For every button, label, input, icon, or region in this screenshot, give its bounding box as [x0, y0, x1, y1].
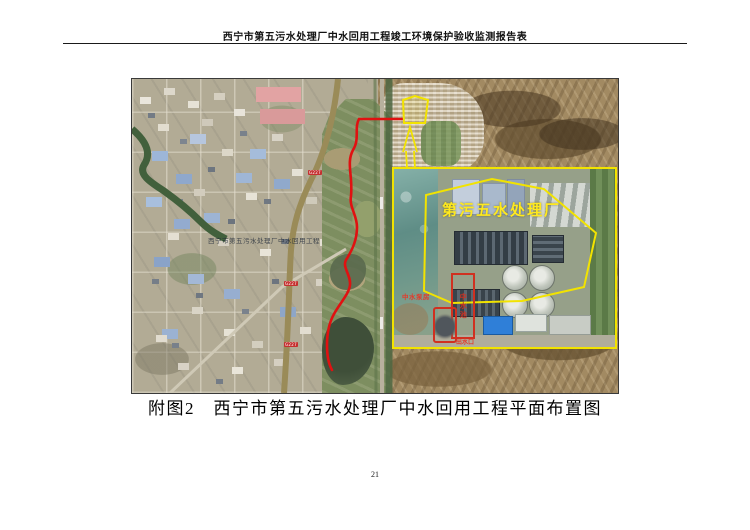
- plant-boundary-outline: [424, 179, 596, 303]
- inset-leader-arrowhead: [403, 127, 417, 152]
- satellite-map-figure: G227 G227 G227 西宁市第五污水处理厂中水回用工程 第污五水处理厂 …: [131, 78, 619, 394]
- inset-overlay-svg: [394, 169, 615, 347]
- reuse-tank-label: 中水池: [459, 293, 467, 320]
- inset-leader-left: [406, 151, 407, 168]
- document-header-title: 西宁市第五污水处理厂中水回用工程竣工环境保护验收监测报告表: [0, 28, 750, 43]
- figure-caption: 附图2 西宁市第五污水处理厂中水回用工程平面布置图: [0, 394, 750, 419]
- road-badge: G227: [284, 281, 298, 286]
- pump-station-label: 中水泵房: [402, 291, 430, 301]
- page-number: 21: [0, 470, 750, 479]
- plant-site-outline: [403, 96, 428, 123]
- road-badge: G227: [308, 170, 322, 175]
- road-label-tick: [380, 317, 383, 329]
- header-rule: [63, 43, 687, 44]
- inset-plant-detail: 第污五水处理厂 中水池 中水泵房 出水口: [392, 167, 617, 349]
- road-label-tick: [380, 197, 383, 209]
- canal: [132, 129, 226, 239]
- outlet-label: 出水口: [456, 337, 474, 346]
- inset-leader-right: [414, 151, 415, 168]
- map-watermark-label: 西宁市第五污水处理厂中水回用工程: [208, 235, 320, 245]
- tank-structure-outline: [433, 307, 457, 343]
- plant-name-label: 第污五水处理厂: [442, 199, 561, 220]
- road-badge: G227: [284, 342, 298, 347]
- diagonal-street: [170, 249, 346, 393]
- tree-row-west: [375, 79, 376, 393]
